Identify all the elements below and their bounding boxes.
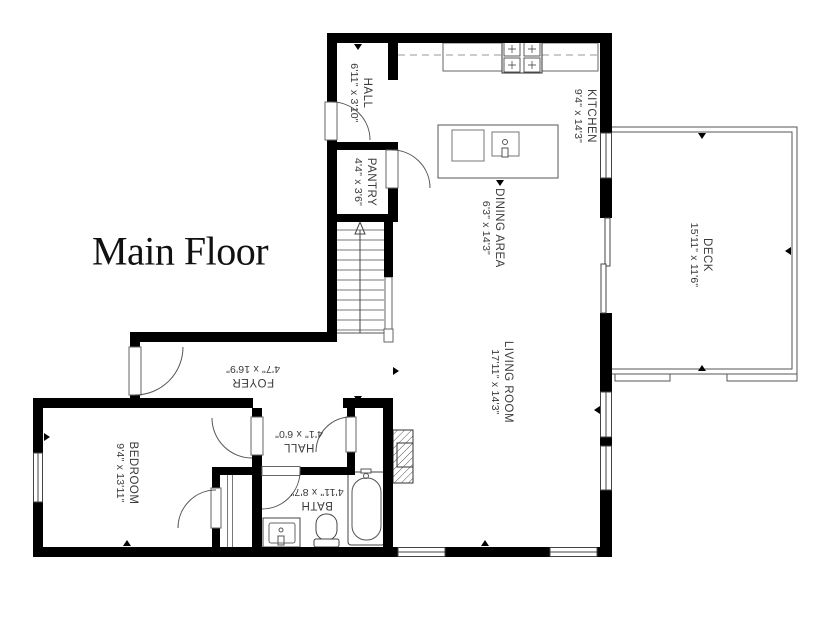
room-label-pantry: PANTRY 4'4" x 3'6"	[351, 158, 377, 207]
bedroom-top-wall	[33, 398, 253, 408]
kitchen-island	[438, 125, 558, 178]
room-label-dining-area: DINING AREA 6'3" x 14'3"	[479, 188, 505, 268]
closet-rod-lines	[228, 475, 233, 547]
bathtub-icon	[348, 469, 385, 545]
cooktop-icon	[502, 40, 542, 73]
room-label-hall-upper: HALL 6'11" x 3'10"	[347, 63, 373, 122]
room-label-foyer: FOYER 4'7" x 16'9"	[226, 362, 280, 388]
pantry-door	[386, 150, 430, 188]
floor-plan-drawing	[0, 0, 825, 640]
fireplace-chimney	[393, 430, 413, 483]
top-exterior-wall	[327, 33, 612, 43]
kitchen-counter	[398, 43, 598, 71]
living-room-window-east-1	[601, 392, 612, 437]
living-room-window-south-2	[550, 548, 597, 557]
bedroom-window	[34, 453, 43, 502]
room-label-hall-lower: HALL 4'1" x 6'0"	[275, 427, 323, 453]
sliding-glass-door	[601, 218, 610, 313]
floor-plan: Main Floor HALL 6'11" x 3'10" PANTRY 4'4…	[0, 0, 825, 640]
room-label-living-room: LIVING ROOM 17'11" x 14'3"	[488, 341, 514, 423]
living-room-window-east-2	[601, 446, 612, 490]
living-room-west-wall	[383, 398, 393, 557]
page-title: Main Floor	[92, 228, 268, 275]
dimension-ticks	[44, 44, 791, 546]
island-sink-icon	[492, 132, 519, 157]
stair-railing	[385, 277, 392, 330]
sink-vanity-icon	[263, 518, 300, 547]
room-label-bedroom: BEDROOM 9'4" x 13'11"	[113, 442, 139, 505]
room-label-bath: BATH 4'11" x 8'7"	[290, 485, 343, 511]
room-label-kitchen: KITCHEN 9'4" x 14'3"	[571, 89, 597, 143]
bedroom-door	[212, 417, 263, 458]
right-exterior-wall	[600, 33, 612, 133]
kitchen-window	[601, 133, 612, 178]
left-exterior-wall	[33, 398, 43, 453]
foyer-top-wall	[130, 332, 337, 342]
railing-post	[384, 329, 393, 342]
front-door	[129, 347, 183, 395]
living-room-window-south-1	[398, 548, 445, 557]
stair-direction-arrow	[355, 222, 365, 333]
toilet-icon	[314, 514, 339, 547]
room-label-deck: DECK 15'11" x 11'6"	[687, 223, 713, 288]
bedroom-closet-door	[178, 488, 221, 528]
